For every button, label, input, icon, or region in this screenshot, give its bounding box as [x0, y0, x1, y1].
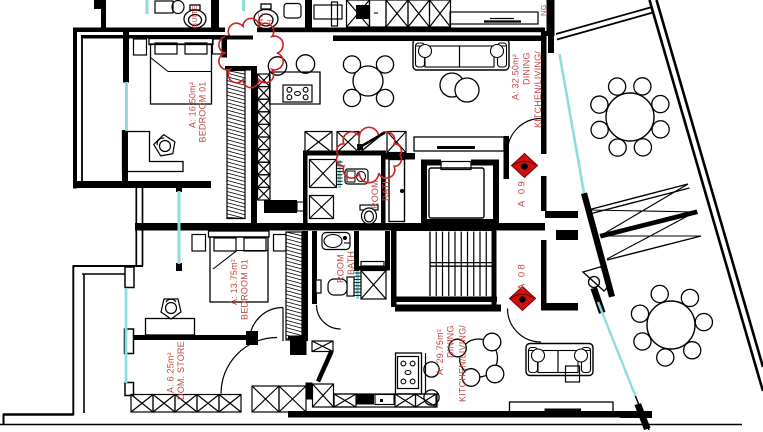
svg-text:A: 29.75m²: A: 29.75m² [435, 329, 445, 375]
svg-text:ROOM: ROOM [370, 180, 380, 209]
svg-text:H: H [265, 19, 274, 25]
svg-text:BATH: BATH [346, 251, 356, 275]
svg-text:KITCHEN/LIVING/: KITCHEN/LIVING/ [458, 325, 468, 402]
svg-text:A: 16.50m²: A: 16.50m² [188, 82, 198, 128]
svg-text:A 08: A 08 [517, 262, 528, 290]
svg-text:DINING: DINING [446, 325, 456, 358]
svg-text:DOM. STORE: DOM. STORE [176, 341, 186, 400]
svg-text:A 09: A 09 [517, 179, 528, 207]
svg-text:ROOM: ROOM [336, 254, 346, 283]
svg-text:A: 6.25m²: A: 6.25m² [166, 352, 176, 393]
svg-text:WC: WC [256, 12, 265, 25]
svg-text:BATH: BATH [381, 177, 391, 201]
svg-text:BEDROOM 01: BEDROOM 01 [240, 259, 250, 320]
svg-text:BEDROOM 01: BEDROOM 01 [198, 81, 208, 142]
svg-text:KITCHEN/LIVING/: KITCHEN/LIVING/ [533, 51, 543, 128]
svg-text:NG: NG [539, 4, 548, 16]
svg-text:DINING: DINING [522, 52, 532, 85]
svg-text:SUITE: SUITE [190, 5, 199, 28]
svg-text:A: 13.75m²: A: 13.75m² [229, 259, 239, 305]
svg-text:A: 32.50m²: A: 32.50m² [511, 54, 521, 100]
